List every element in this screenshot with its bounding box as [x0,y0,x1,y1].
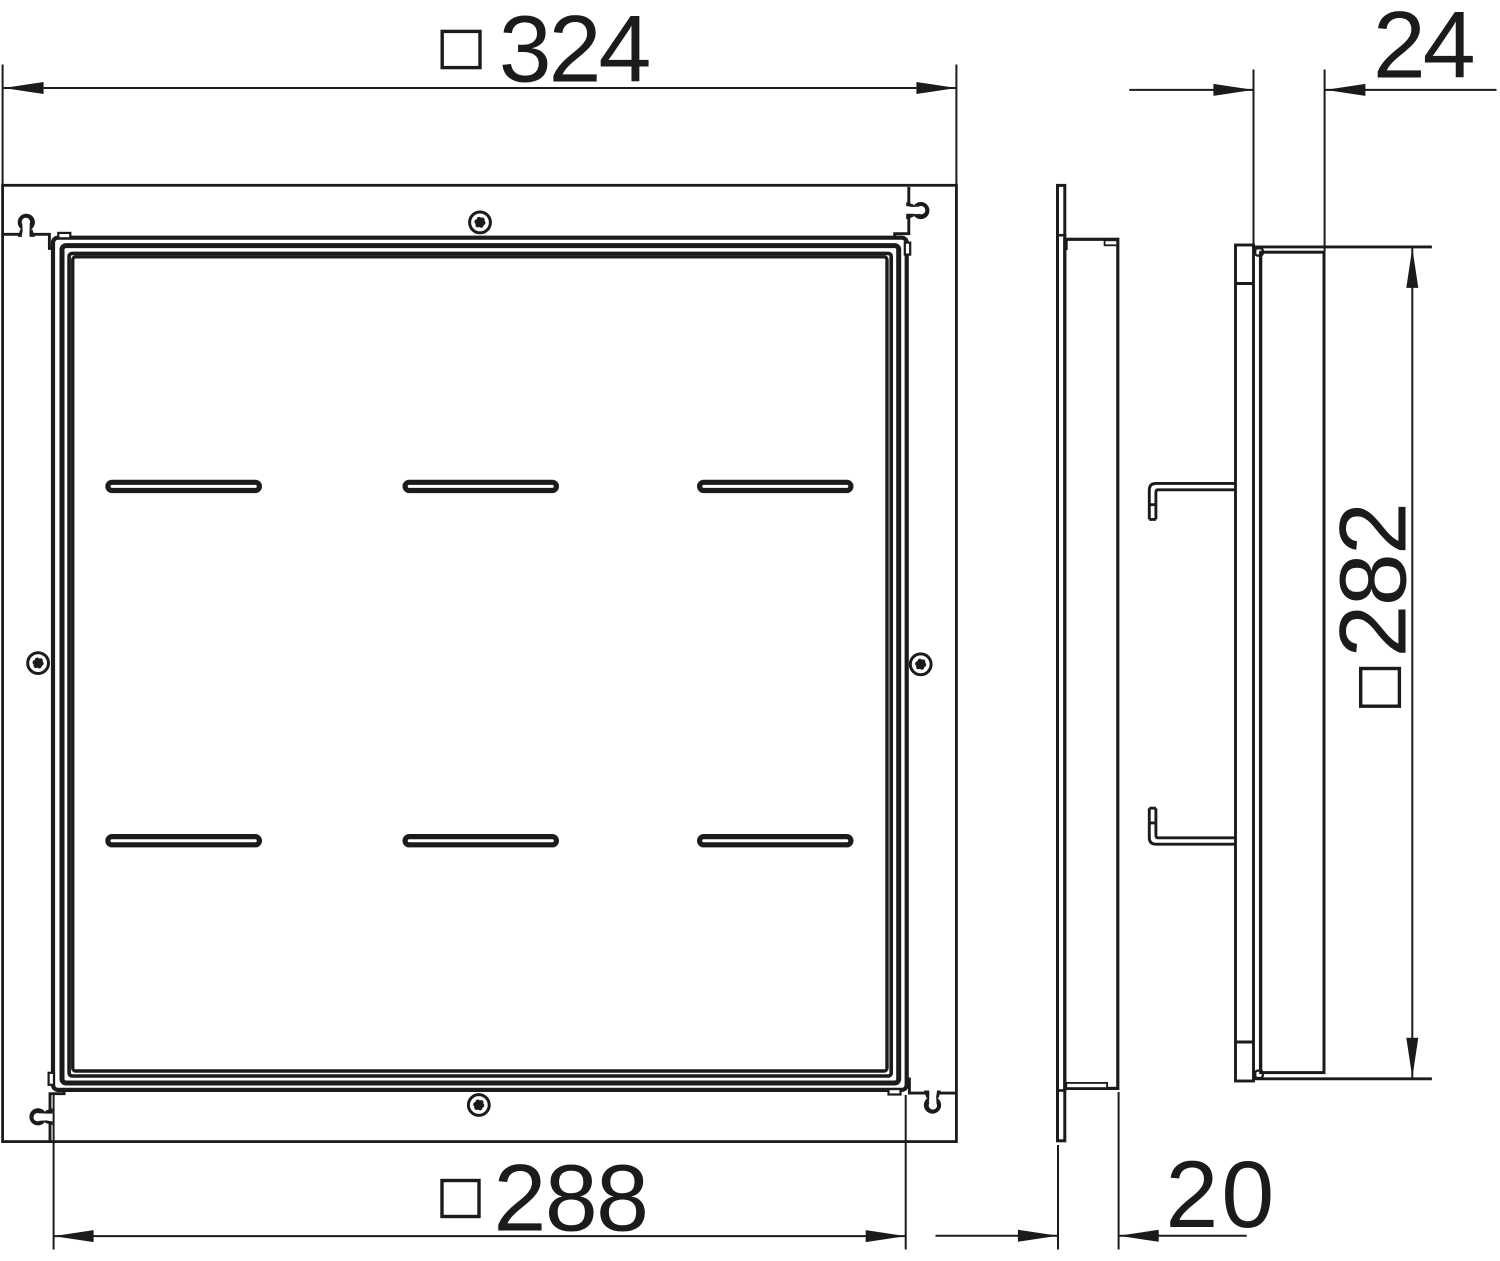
svg-text:20: 20 [1166,1142,1278,1248]
svg-text:282: 282 [1320,503,1426,657]
svg-text:288: 288 [494,1146,648,1252]
svg-text:324: 324 [499,0,650,103]
svg-text:24: 24 [1373,0,1474,98]
